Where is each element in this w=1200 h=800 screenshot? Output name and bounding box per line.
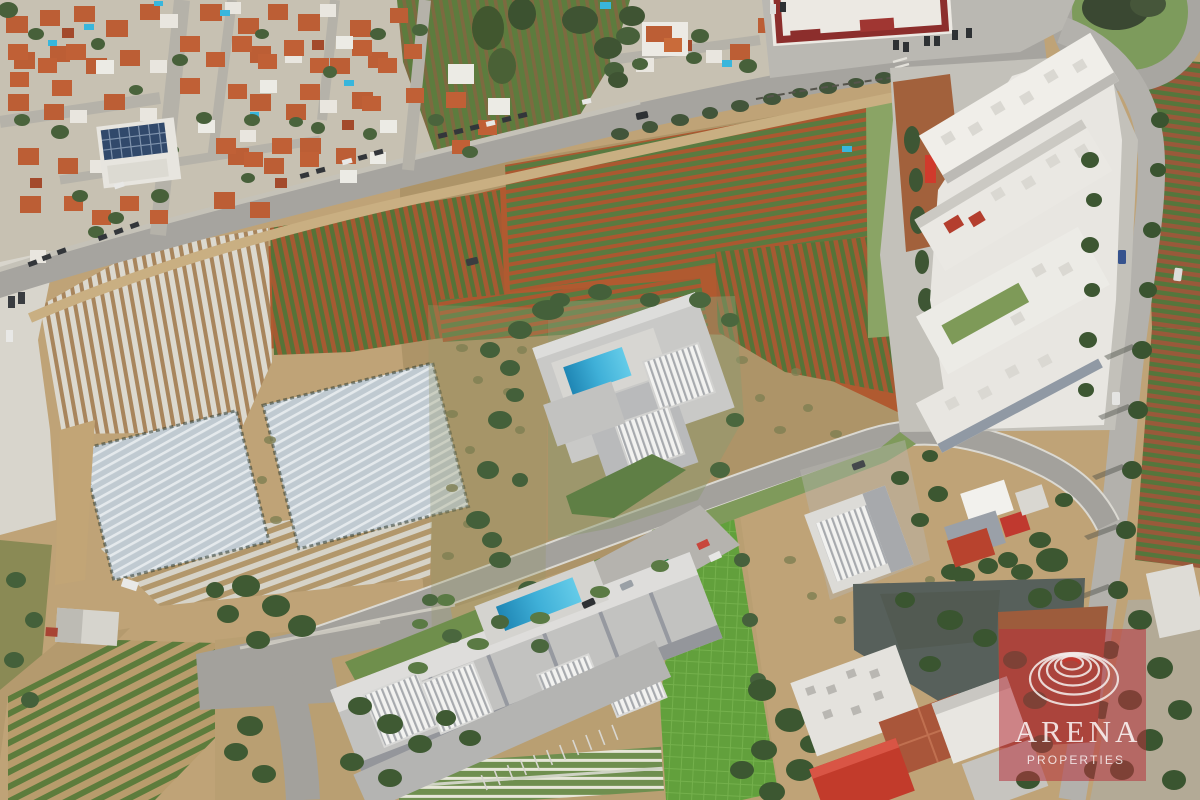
svg-text:ARENA: ARENA xyxy=(1015,714,1142,749)
svg-text:PROPERTIES: PROPERTIES xyxy=(1027,753,1125,767)
